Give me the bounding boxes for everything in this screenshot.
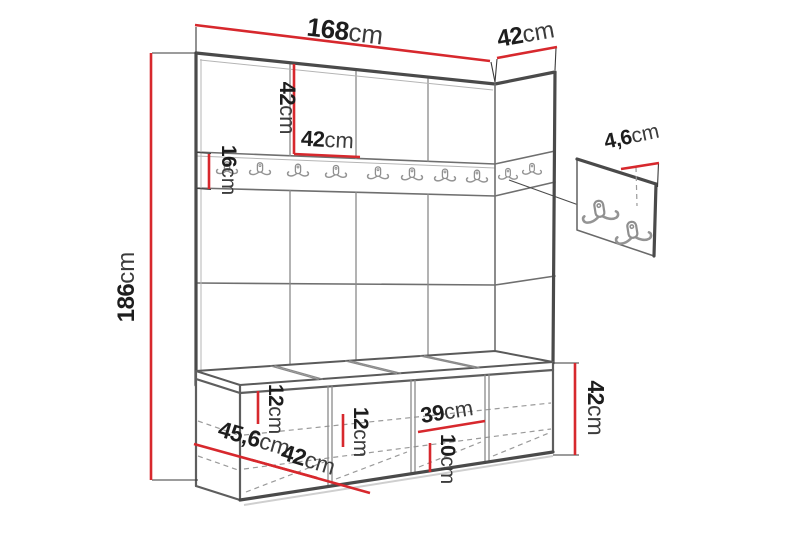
dim-width-top: 168cm [305, 12, 385, 51]
dim-bench-gap-mid: 12cm [349, 407, 372, 457]
dim-door-width: 42cm [300, 126, 354, 154]
wardrobe-unit [196, 53, 555, 390]
dim-depth-top: 42cm [495, 16, 557, 53]
dim-bench-height: 42cm [583, 380, 609, 435]
diagram-canvas: 168cm 42cm 186cm 42cm 42cm 16cm 12cm 12c… [0, 0, 800, 533]
dim-line-panel-hook-depth [621, 163, 659, 169]
dim-height-left: 186cm [113, 252, 140, 323]
panel-right-edge [654, 184, 656, 256]
dim-panel-hook-depth: 4,6cm [602, 120, 661, 154]
furniture-dimension-diagram: 168cm 42cm 186cm 42cm 42cm 16cm 12cm 12c… [0, 0, 800, 533]
dim-rail-height: 16cm [217, 145, 240, 195]
dim-cabinet-height: 42cm [275, 82, 300, 135]
dim-bench-gap-bottom: 10cm [436, 434, 459, 484]
dim-bench-gap-top: 12cm [264, 384, 287, 434]
unit-right-edge [553, 72, 555, 363]
